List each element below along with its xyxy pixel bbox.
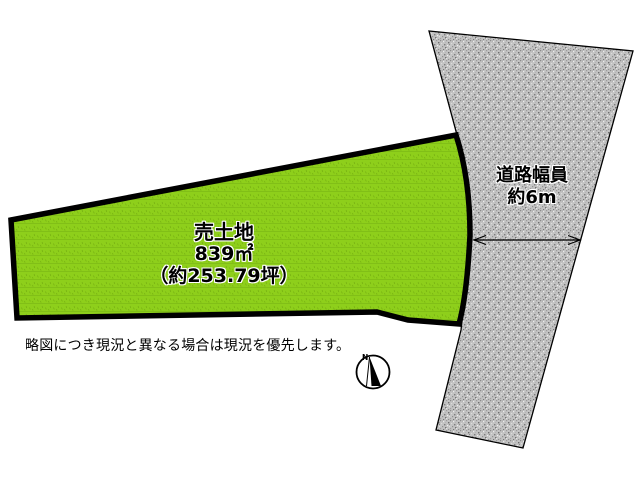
plot-area-sqm: 839㎡ bbox=[94, 243, 354, 265]
road-width-value: 約6m bbox=[452, 187, 612, 209]
disclaimer-text: 略図につき現況と異なる場合は現況を優先します。 bbox=[25, 338, 350, 355]
plot-diagram-canvas: N 売土地 839㎡ （約253.79坪） 道路幅員 約6m 略図につき現況と異… bbox=[0, 0, 640, 480]
compass-icon: N bbox=[357, 353, 390, 389]
road-width-label: 道路幅員 約6m bbox=[452, 165, 612, 209]
compass-north-label: N bbox=[362, 353, 368, 362]
plot-label: 売土地 839㎡ （約253.79坪） bbox=[94, 221, 354, 287]
plot-title: 売土地 bbox=[94, 221, 354, 243]
road-width-label-text: 道路幅員 bbox=[452, 165, 612, 187]
plot-area-tsubo: （約253.79坪） bbox=[94, 265, 354, 287]
